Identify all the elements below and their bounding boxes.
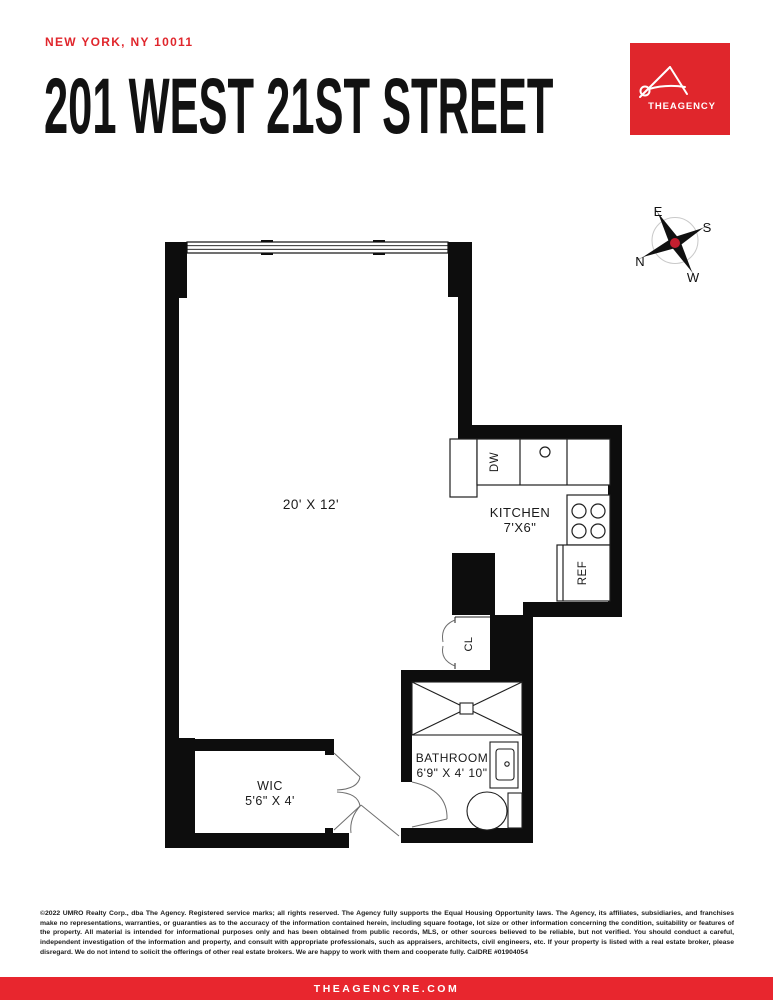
stove-burner-icon (591, 504, 605, 518)
logo-background (630, 43, 730, 135)
compass-label-east: E (654, 204, 663, 219)
sink-drain-icon (505, 762, 509, 766)
footer-website: THEAGENCYRE.COM (314, 983, 459, 995)
closet-door-arc (443, 646, 456, 666)
bathroom-name-label: BATHROOM (416, 751, 488, 765)
wic-door-arc (337, 792, 360, 806)
kitchen-dims-label: 7'X6" (504, 520, 537, 535)
main-room-dims-label: 20' X 12' (283, 497, 339, 512)
sink-faucet-icon (540, 447, 550, 457)
wall-block-kitchen (452, 553, 495, 615)
wall-kitchen-top (458, 425, 622, 440)
bathroom-door-leaf (412, 819, 447, 827)
wall-wic-top (179, 739, 334, 751)
toilet-bowl (467, 792, 507, 830)
agency-logo: THEAGENCY (630, 43, 730, 135)
wall-bath-right (522, 670, 533, 843)
wall-bottom (165, 833, 349, 848)
wall-right-post (448, 242, 472, 297)
wall-left-post (165, 242, 187, 298)
logo-brand-text: THEAGENCY (648, 101, 716, 112)
wall-left-wic (165, 738, 195, 848)
wic-name-label: WIC (257, 779, 283, 793)
shower-drain-icon (460, 703, 473, 714)
window-band (187, 242, 448, 253)
compass-label-west: W (687, 270, 700, 285)
closet-door-arc (443, 620, 456, 642)
entry-door-leaf (361, 805, 399, 836)
listing-location: NEW YORK, NY 10011 (45, 35, 193, 49)
kitchen-counter-return (450, 439, 477, 497)
stove-burner-icon (572, 504, 586, 518)
listing-address-title: 201 WEST 21ST STREET (44, 66, 553, 145)
wall-bath-bottom (401, 828, 533, 843)
floorplan-drawing: 20' X 12' KITCHEN 7'X6" BATHROOM 6'9" X … (150, 228, 640, 878)
stove-burner-icon (591, 524, 605, 538)
kitchen-name-label: KITCHEN (490, 505, 551, 520)
wall-bath-left (401, 670, 412, 782)
compass-center-dot (670, 238, 680, 248)
dishwasher-label: DW (489, 452, 501, 472)
bathroom-dims-label: 6'9" X 4' 10" (417, 766, 488, 780)
stove (567, 495, 610, 545)
floorplan-page: NEW YORK, NY 10011 201 WEST 21ST STREET … (0, 0, 773, 1000)
footer-bar: THEAGENCYRE.COM (0, 977, 773, 1000)
stove-burner-icon (572, 524, 586, 538)
refrigerator-label: REF (577, 561, 589, 586)
toilet-tank (508, 793, 522, 828)
wic-dims-label: 5'6" X 4' (245, 794, 295, 808)
closet-label: CL (463, 636, 475, 651)
wall-right-main (458, 295, 472, 427)
agency-logo-graphic: THEAGENCY (630, 43, 730, 135)
compass-label-south: S (703, 220, 712, 235)
bathroom-door-arc (412, 782, 447, 819)
wall-bottom-cap (325, 828, 333, 834)
walls (165, 240, 622, 848)
wic-door-leaf (334, 753, 360, 777)
legal-disclaimer: ©2022 UMRO Realty Corp., dba The Agency.… (40, 909, 734, 957)
wall-bath-top (401, 670, 533, 683)
wic-door-arc (337, 777, 360, 790)
wic-door-leaf (334, 806, 360, 830)
wall-kitchen-bottom (523, 602, 622, 617)
wall-wic-top-cap (325, 739, 334, 755)
